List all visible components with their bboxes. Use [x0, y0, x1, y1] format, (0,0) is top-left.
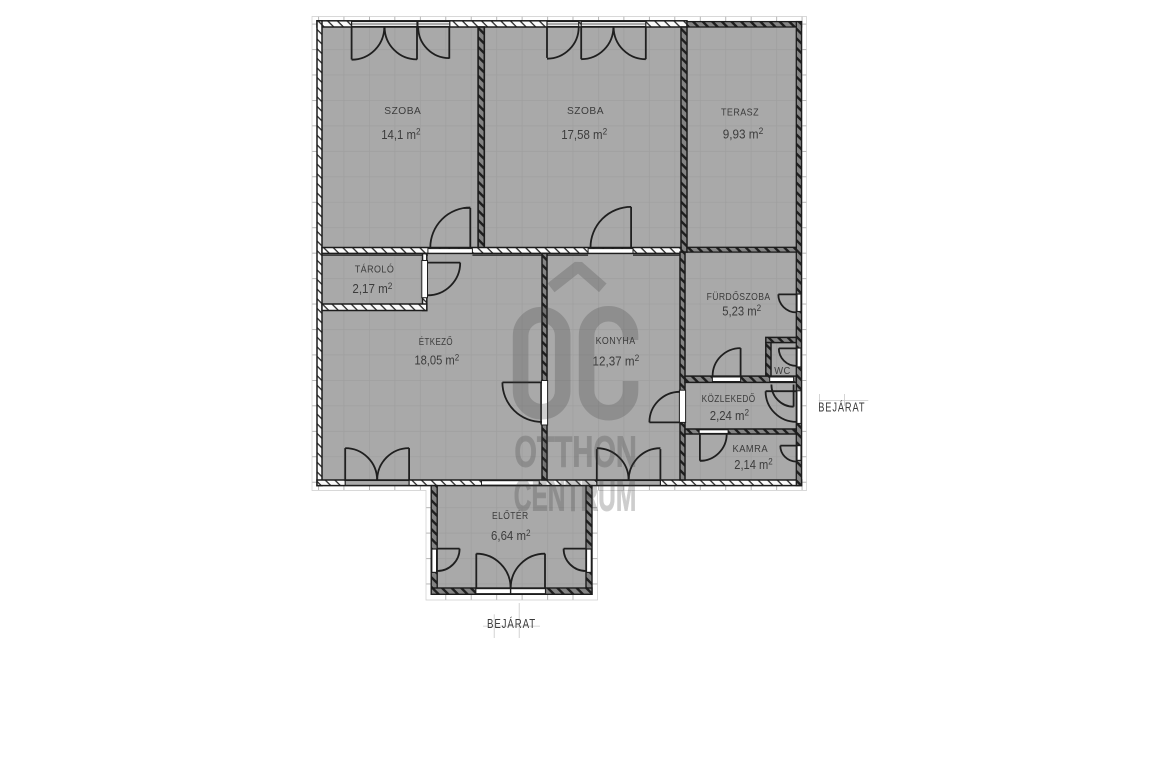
svg-text:ÉTKEZŐ: ÉTKEZŐ	[419, 334, 453, 348]
svg-text:2,17 m2: 2,17 m2	[352, 281, 392, 296]
svg-text:6,64 m2: 6,64 m2	[491, 528, 531, 543]
svg-text:BEJÁRAT: BEJÁRAT	[487, 616, 536, 631]
svg-text:KAMRA: KAMRA	[733, 444, 769, 455]
svg-text:CENTRUM: CENTRUM	[514, 472, 637, 521]
svg-text:9,93 m2: 9,93 m2	[723, 126, 764, 141]
svg-text:2,24 m2: 2,24 m2	[710, 408, 749, 423]
svg-text:OTTHON: OTTHON	[514, 428, 637, 477]
svg-text:KÖZLEKEDŐ: KÖZLEKEDŐ	[702, 391, 756, 405]
svg-text:BEJÁRAT: BEJÁRAT	[818, 400, 865, 415]
svg-text:TERASZ: TERASZ	[721, 108, 759, 119]
svg-text:17,58 m2: 17,58 m2	[561, 127, 607, 142]
svg-text:TÁROLÓ: TÁROLÓ	[355, 263, 395, 276]
svg-text:18,05 m2: 18,05 m2	[414, 352, 459, 367]
svg-text:5,23 m2: 5,23 m2	[722, 303, 761, 318]
svg-text:FÜRDŐSZOBA: FÜRDŐSZOBA	[707, 289, 771, 303]
svg-text:SZOBA: SZOBA	[384, 106, 421, 117]
svg-text:SZOBA: SZOBA	[567, 106, 604, 117]
svg-text:12,37 m2: 12,37 m2	[593, 353, 640, 368]
svg-text:14,1 m2: 14,1 m2	[381, 127, 420, 142]
svg-text:WC: WC	[774, 366, 791, 377]
svg-text:2,14 m2: 2,14 m2	[734, 457, 772, 472]
